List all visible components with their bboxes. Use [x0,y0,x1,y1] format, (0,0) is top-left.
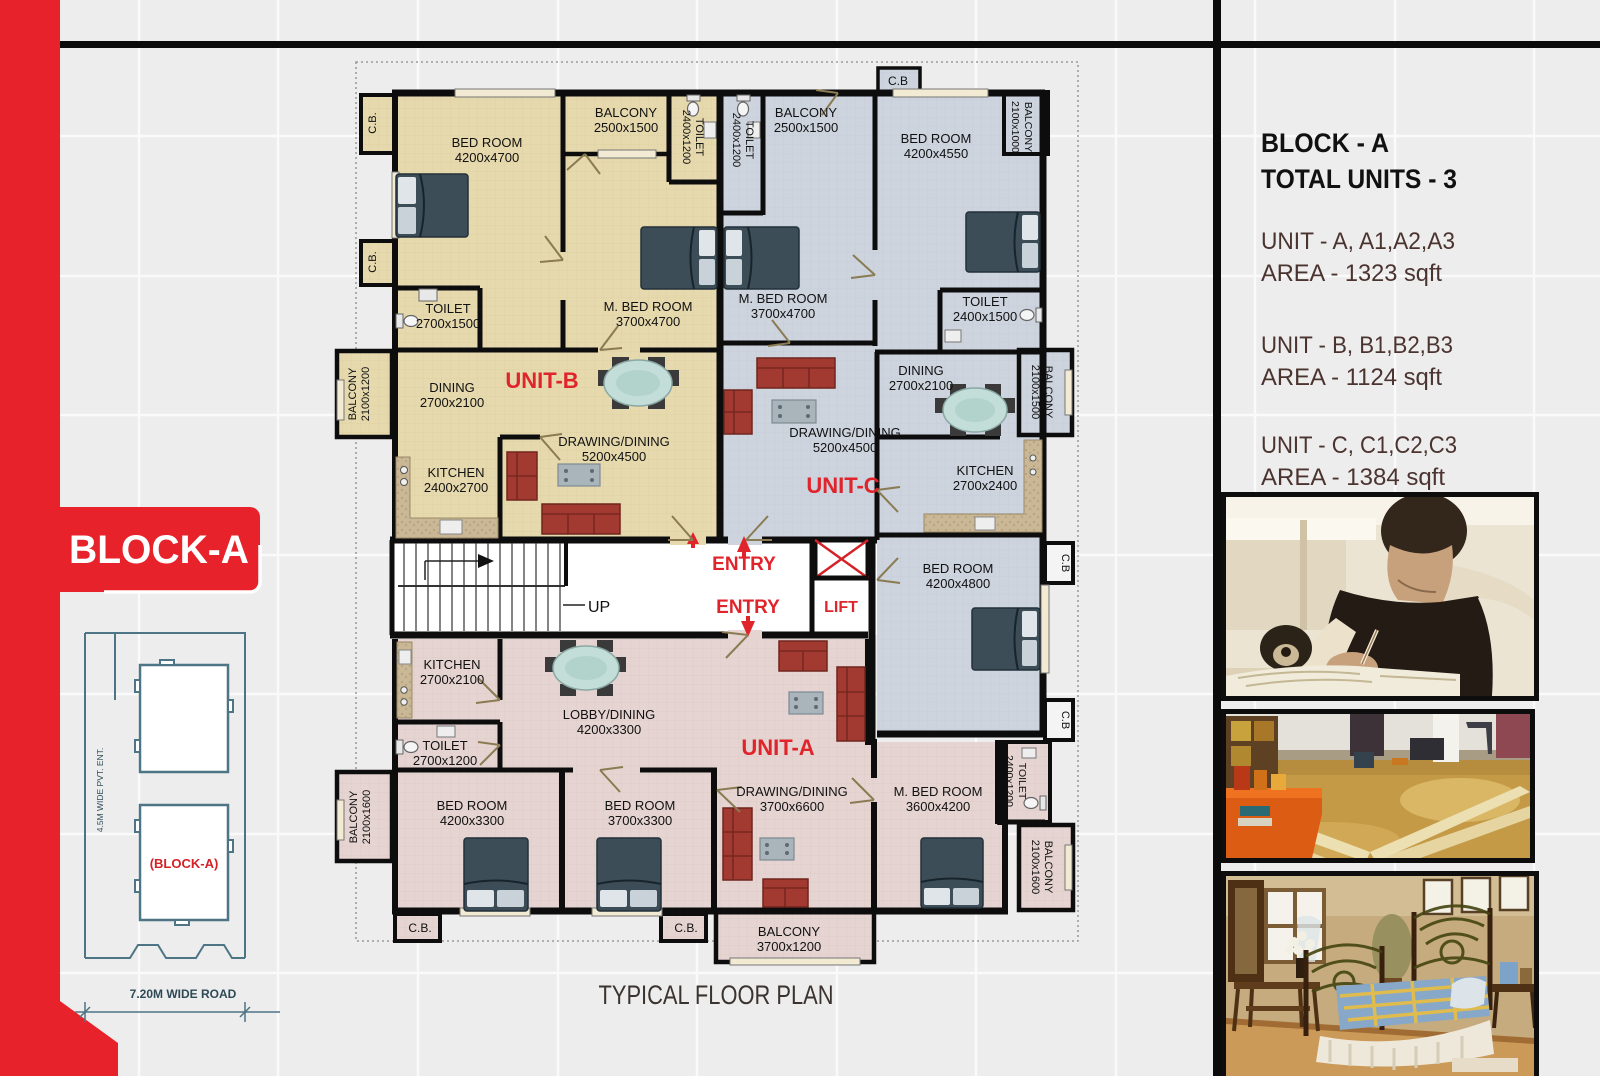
svg-text:BALCONY: BALCONY [348,790,360,843]
svg-text:BALCONY: BALCONY [1042,366,1054,419]
svg-text:BLOCK-A: BLOCK-A [69,528,249,572]
svg-text:UP: UP [588,599,610,616]
svg-text:4200x4550: 4200x4550 [904,146,968,161]
svg-text:ENTRY: ENTRY [716,597,780,618]
svg-text:M. BED ROOM: M. BED ROOM [604,299,693,314]
svg-text:4200x4700: 4200x4700 [455,150,519,165]
svg-text:LIFT: LIFT [824,599,858,616]
svg-text:4.5M WIDE PVT. ENT.: 4.5M WIDE PVT. ENT. [95,748,105,833]
svg-text:2700x1500: 2700x1500 [416,316,480,331]
svg-text:4200x3300: 4200x3300 [577,722,641,737]
svg-text:DRAWING/DINING: DRAWING/DINING [558,434,669,449]
svg-text:3700x4700: 3700x4700 [616,314,680,329]
svg-text:UNIT-B: UNIT-B [505,368,578,393]
svg-text:TOILET: TOILET [1016,763,1028,800]
svg-text:2100x1600: 2100x1600 [1029,840,1041,894]
svg-text:UNIT - B, B1,B2,B3: UNIT - B, B1,B2,B3 [1261,332,1453,359]
svg-text:2700x1200: 2700x1200 [413,753,477,768]
svg-text:UNIT-A: UNIT-A [741,735,814,760]
svg-text:BED ROOM: BED ROOM [605,798,676,813]
svg-text:C.B: C.B [1059,554,1071,572]
svg-text:BED ROOM: BED ROOM [437,798,508,813]
svg-text:2100x1500: 2100x1500 [1029,365,1041,419]
svg-text:KITCHEN: KITCHEN [956,463,1013,478]
svg-text:DINING: DINING [429,380,475,395]
svg-text:4200x3300: 4200x3300 [440,813,504,828]
svg-text:KITCHEN: KITCHEN [423,657,480,672]
svg-text:2400x1200: 2400x1200 [1003,755,1015,807]
svg-text:3600x4200: 3600x4200 [906,799,970,814]
svg-text:3700x6600: 3700x6600 [760,799,824,814]
svg-text:BALCONY: BALCONY [1022,102,1034,152]
svg-text:2700x2100: 2700x2100 [420,672,484,687]
svg-text:2400x1200: 2400x1200 [730,113,742,167]
svg-text:DRAWING/DINING: DRAWING/DINING [736,784,847,799]
svg-text:TOILET: TOILET [422,738,467,753]
svg-text:2400x1200: 2400x1200 [680,110,692,164]
svg-text:BALCONY: BALCONY [347,367,359,420]
svg-text:UNIT - C, C1,C2,C3: UNIT - C, C1,C2,C3 [1261,432,1457,459]
svg-text:4200x4800: 4200x4800 [926,576,990,591]
svg-text:2400x1500: 2400x1500 [953,309,1017,324]
svg-text:2500x1500: 2500x1500 [774,120,838,135]
svg-text:BALCONY: BALCONY [595,105,657,120]
svg-text:C.B.: C.B. [674,921,697,935]
svg-text:2500x1500: 2500x1500 [594,120,658,135]
svg-text:C.B.: C.B. [367,251,379,272]
svg-text:LOBBY/DINING: LOBBY/DINING [563,707,655,722]
svg-text:2100x1600: 2100x1600 [361,790,373,844]
svg-text:2100x1200: 2100x1200 [360,367,372,421]
svg-text:BLOCK - A: BLOCK - A [1261,128,1389,158]
svg-text:7.20M WIDE ROAD: 7.20M WIDE ROAD [130,987,237,1001]
svg-text:TYPICAL FLOOR PLAN: TYPICAL FLOOR PLAN [599,980,834,1010]
svg-text:2100x1000: 2100x1000 [1009,101,1021,153]
svg-text:M. BED ROOM: M. BED ROOM [894,784,983,799]
svg-text:KITCHEN: KITCHEN [427,465,484,480]
svg-text:2700x2100: 2700x2100 [889,378,953,393]
svg-text:AREA - 1384 sqft: AREA - 1384 sqft [1261,464,1445,491]
svg-text:TOILET: TOILET [743,121,755,160]
svg-text:UNIT-C: UNIT-C [806,473,879,498]
svg-text:UNIT - A, A1,A2,A3: UNIT - A, A1,A2,A3 [1261,228,1455,255]
svg-text:BED ROOM: BED ROOM [452,135,523,150]
svg-text:C.B: C.B [1059,711,1071,729]
svg-text:ENTRY: ENTRY [712,554,776,575]
svg-text:TOTAL UNITS - 3: TOTAL UNITS - 3 [1261,164,1457,194]
svg-text:BALCONY: BALCONY [1042,841,1054,894]
svg-text:C.B.: C.B. [367,112,379,133]
svg-text:BED ROOM: BED ROOM [923,561,994,576]
svg-text:3700x3300: 3700x3300 [608,813,672,828]
svg-text:M. BED ROOM: M. BED ROOM [739,291,828,306]
svg-text:5200x4500: 5200x4500 [813,440,877,455]
svg-text:2700x2400: 2700x2400 [953,478,1017,493]
svg-text:BALCONY: BALCONY [758,924,820,939]
svg-text:AREA - 1323 sqft: AREA - 1323 sqft [1261,260,1442,287]
svg-text:2700x2100: 2700x2100 [420,395,484,410]
svg-text:TOILET: TOILET [693,118,705,157]
svg-text:5200x4500: 5200x4500 [582,449,646,464]
svg-text:AREA - 1124 sqft: AREA - 1124 sqft [1261,364,1442,391]
svg-text:(BLOCK-A): (BLOCK-A) [150,856,219,871]
svg-text:BED ROOM: BED ROOM [901,131,972,146]
svg-text:TOILET: TOILET [962,294,1007,309]
svg-text:3700x4700: 3700x4700 [751,306,815,321]
svg-text:3700x1200: 3700x1200 [757,939,821,954]
svg-text:TOILET: TOILET [425,301,470,316]
svg-text:BALCONY: BALCONY [775,105,837,120]
svg-text:2400x2700: 2400x2700 [424,480,488,495]
svg-text:DINING: DINING [898,363,944,378]
svg-text:C.B: C.B [888,74,908,88]
svg-text:C.B.: C.B. [408,921,431,935]
svg-text:DRAWING/DINING: DRAWING/DINING [789,425,900,440]
